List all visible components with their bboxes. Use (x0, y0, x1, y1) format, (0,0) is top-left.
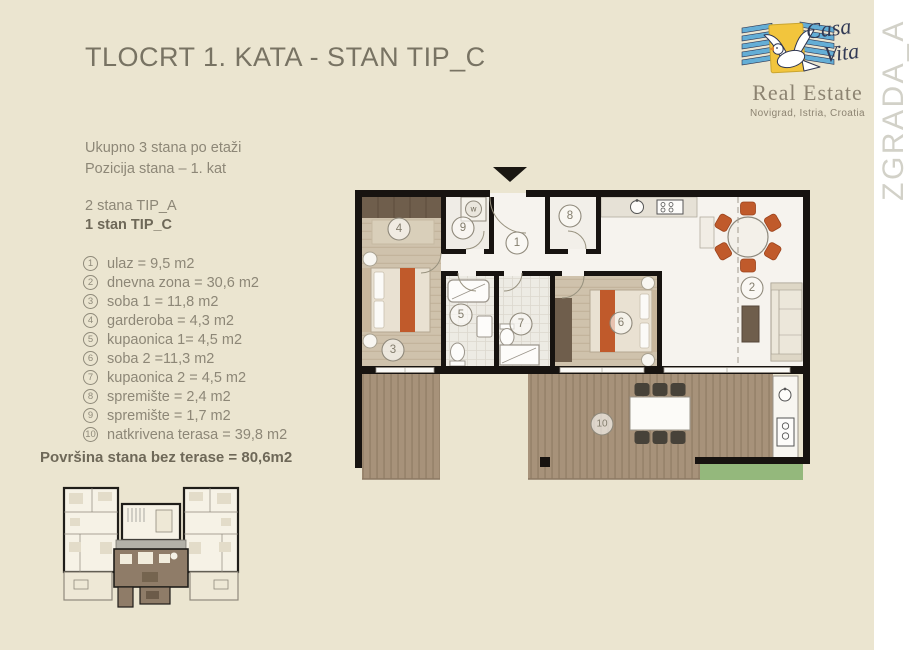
terrace-dining-set (630, 383, 690, 444)
legend-number: 9 (83, 408, 98, 423)
room-label-9: 9 (452, 217, 474, 239)
info-position: Pozicija stana – 1. kat (85, 159, 241, 180)
building-overview-plan (56, 482, 246, 627)
room-legend: 1ulaz = 9,5 m2 2dnevna zona = 30,6 m2 3s… (83, 254, 287, 444)
svg-text:6: 6 (618, 317, 624, 329)
legend-row: 8spremište = 2,4 m2 (83, 387, 287, 406)
room-label-4: 4 (388, 218, 410, 240)
total-area-line: Površina stana bez terase = 80,6m2 (40, 449, 292, 466)
legend-number: 8 (83, 389, 98, 404)
room-label-5: 5 (450, 304, 472, 326)
logo-location: Novigrad, Istria, Croatia (740, 108, 875, 119)
legend-number: 7 (83, 370, 98, 385)
legend-row: 7kupaonica 2 = 4,5 m2 (83, 368, 287, 387)
legend-number: 6 (83, 351, 98, 366)
mini-right-wing (184, 488, 238, 600)
svg-text:w: w (470, 205, 477, 214)
svg-text:8: 8 (567, 210, 573, 222)
type-c-line: 1 stan TIP_C (85, 216, 177, 235)
legend-label: dnevna zona = 30,6 m2 (107, 275, 259, 291)
terrace (362, 374, 803, 480)
floorplan-svg: w (352, 158, 814, 484)
mini-left-wing (64, 488, 118, 600)
room-label-2: 2 (741, 277, 763, 299)
legend-label: spremište = 2,4 m2 (107, 389, 231, 405)
legend-number: 3 (83, 294, 98, 309)
legend-label: kupaonica 1= 4,5 m2 (107, 332, 242, 348)
legend-row: 10natkrivena terasa = 39,8 m2 (83, 425, 287, 444)
room-label-7: 7 (510, 313, 532, 335)
type-a-line: 2 stana TIP_A (85, 197, 177, 216)
svg-text:10: 10 (596, 419, 608, 430)
room-label-10: 10 (591, 413, 613, 435)
legend-number: 5 (83, 332, 98, 347)
svg-text:9: 9 (460, 222, 466, 234)
room-label-6: 6 (610, 312, 632, 334)
legend-label: garderoba = 4,3 m2 (107, 313, 234, 329)
legend-number: 2 (83, 275, 98, 290)
legend-label: soba 1 = 11,8 m2 (107, 294, 218, 310)
legend-row: 1ulaz = 9,5 m2 (83, 254, 287, 273)
svg-text:3: 3 (390, 344, 396, 356)
legend-number: 10 (83, 427, 98, 442)
building-label-vertical: ZGRADA_A (877, 0, 907, 220)
legend-row: 2dnevna zona = 30,6 m2 (83, 273, 287, 292)
outdoor-kitchen (773, 376, 798, 460)
entry-arrow-icon (493, 167, 527, 182)
legend-label: ulaz = 9,5 m2 (107, 256, 194, 272)
mini-roof-strip (116, 540, 186, 549)
legend-row: 4garderoba = 4,3 m2 (83, 311, 287, 330)
flyer-page: ZGRADA_A TLOCRT 1. KATA - STAN TIP_C Uku… (0, 0, 920, 650)
legend-number: 4 (83, 313, 98, 328)
svg-text:5: 5 (458, 309, 464, 321)
svg-text:4: 4 (396, 223, 403, 235)
svg-text:7: 7 (518, 318, 524, 330)
company-logo: Casa Vita Real Estate Novigrad, Istria, … (740, 14, 875, 126)
mini-core (122, 504, 180, 540)
type-block: 2 stana TIP_A 1 stan TIP_C (85, 197, 177, 235)
room-label-1: 1 (506, 232, 528, 254)
logo-script-vita: Vita (823, 38, 861, 68)
legend-row: 9spremište = 1,7 m2 (83, 406, 287, 425)
svg-text:1: 1 (514, 237, 520, 249)
mini-highlighted-apartment (114, 549, 188, 607)
wardrobe-room4 (362, 197, 441, 218)
page-title: TLOCRT 1. KATA - STAN TIP_C (85, 42, 486, 73)
svg-text:2: 2 (749, 282, 755, 294)
terrace-pillar (540, 457, 550, 467)
info-block: Ukupno 3 stana po etaži Pozicija stana –… (85, 138, 241, 180)
legend-label: spremište = 1,7 m2 (107, 408, 231, 424)
legend-row: 6soba 2 =11,3 m2 (83, 349, 287, 368)
legend-row: 3soba 1 = 11,8 m2 (83, 292, 287, 311)
logo-subtitle: Real Estate (740, 80, 875, 106)
room-label-8: 8 (559, 205, 581, 227)
legend-label: natkrivena terasa = 39,8 m2 (107, 427, 287, 443)
grass-patch (700, 464, 803, 480)
legend-row: 5kupaonica 1= 4,5 m2 (83, 330, 287, 349)
legend-label: soba 2 =11,3 m2 (107, 351, 214, 367)
info-total-per-floor: Ukupno 3 stana po etaži (85, 138, 241, 159)
legend-number: 1 (83, 256, 98, 271)
logo-left-shutter (742, 23, 772, 65)
room-label-3: 3 (382, 339, 404, 361)
legend-label: kupaonica 2 = 4,5 m2 (107, 370, 246, 386)
